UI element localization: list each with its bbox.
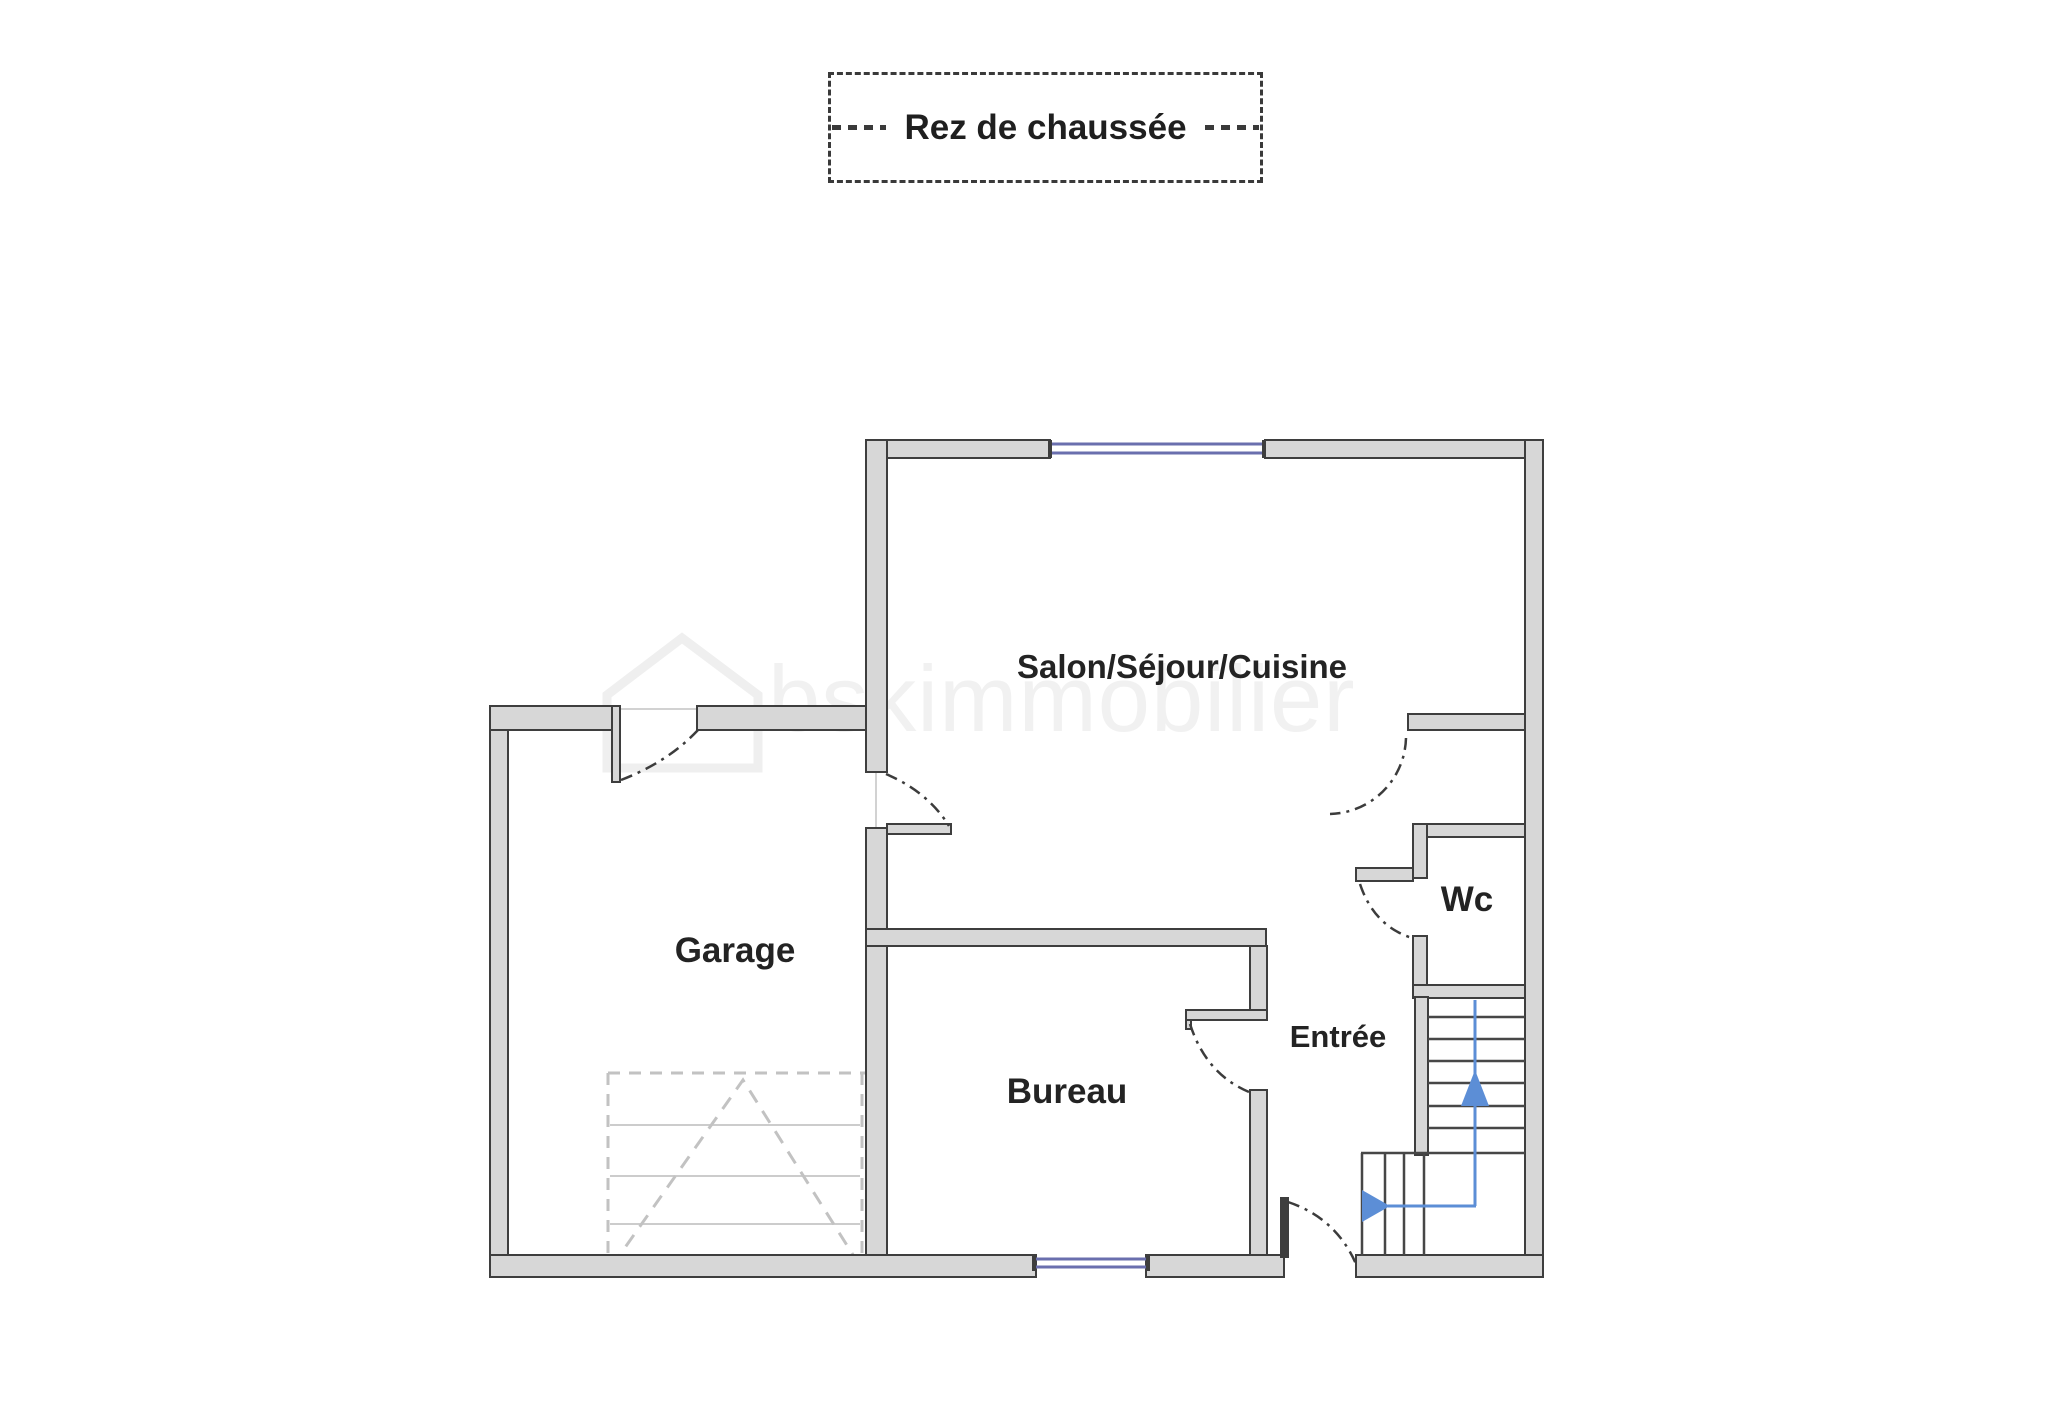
floor-plan-canvas: bskimmobilier: [0, 0, 2048, 1414]
wall-wc-door-stub: [1356, 868, 1413, 881]
room-label-salon: Salon/Séjour/Cuisine: [1017, 648, 1347, 686]
garage-door-chevron: [612, 1080, 860, 1266]
walls: [490, 440, 1543, 1277]
wall-left: [490, 706, 508, 1277]
wall-bureau-right-lower: [1250, 1090, 1267, 1277]
door-arcs: [621, 730, 1412, 1264]
wall-bottom-right: [1356, 1255, 1543, 1277]
wall-wc-bottom: [1413, 985, 1525, 998]
floor-title: Rez de chaussée: [904, 108, 1186, 148]
wall-top-right: [1265, 440, 1543, 458]
entrance-door-arc: [1288, 1202, 1356, 1264]
stair-arrow-up-icon: [1461, 1070, 1489, 1106]
window-cap: [1146, 1255, 1150, 1271]
wall-salon-left-upper: [866, 440, 887, 772]
wall-garage-top-a: [490, 706, 615, 730]
wall-right: [1525, 440, 1543, 1275]
window-cap: [1032, 1255, 1036, 1271]
wall-top-left: [866, 440, 1050, 458]
wall-bottom-left: [490, 1255, 1036, 1277]
wall-bureau-door-stub: [1186, 1010, 1267, 1020]
hall-door-arc: [1330, 738, 1406, 814]
window-cap: [1048, 440, 1052, 458]
window-cap: [1262, 440, 1266, 458]
entrance-door-leaf: [1281, 1198, 1288, 1257]
room-label-garage: Garage: [675, 931, 796, 971]
wall-bureau-right-upper: [1250, 946, 1267, 1020]
room-label-wc: Wc: [1441, 880, 1494, 920]
wall-nook: [1408, 714, 1525, 730]
wall-salon-door-stub: [887, 824, 951, 834]
wall-bureau-top: [866, 929, 1266, 946]
window-top: [1048, 440, 1266, 458]
wall-wc-top: [1413, 824, 1525, 837]
garage-top-door-arc: [621, 730, 698, 780]
floor-plan-drawing: [0, 0, 2048, 1414]
room-label-entree: Entrée: [1290, 1019, 1386, 1055]
wall-garage-door-jamb: [612, 706, 620, 782]
title-dash-left: [832, 125, 886, 130]
title-dash-right: [1205, 125, 1259, 130]
salon-door-arc: [886, 774, 949, 826]
wall-bottom-middle: [1146, 1255, 1284, 1277]
wall-wc-left-upper: [1413, 824, 1427, 878]
window-bottom: [1032, 1255, 1150, 1271]
garage-door-marking: [608, 1073, 866, 1266]
wall-wc-left-lower: [1413, 936, 1427, 988]
floor-title-box: Rez de chaussée: [828, 72, 1263, 183]
wall-stair-left: [1415, 997, 1428, 1155]
wc-door-arc: [1360, 884, 1412, 938]
room-label-bureau: Bureau: [1007, 1072, 1128, 1112]
bureau-door-arc: [1190, 1024, 1249, 1092]
wall-garage-top-b: [697, 706, 869, 730]
wall-salon-left-lower: [866, 828, 887, 1277]
